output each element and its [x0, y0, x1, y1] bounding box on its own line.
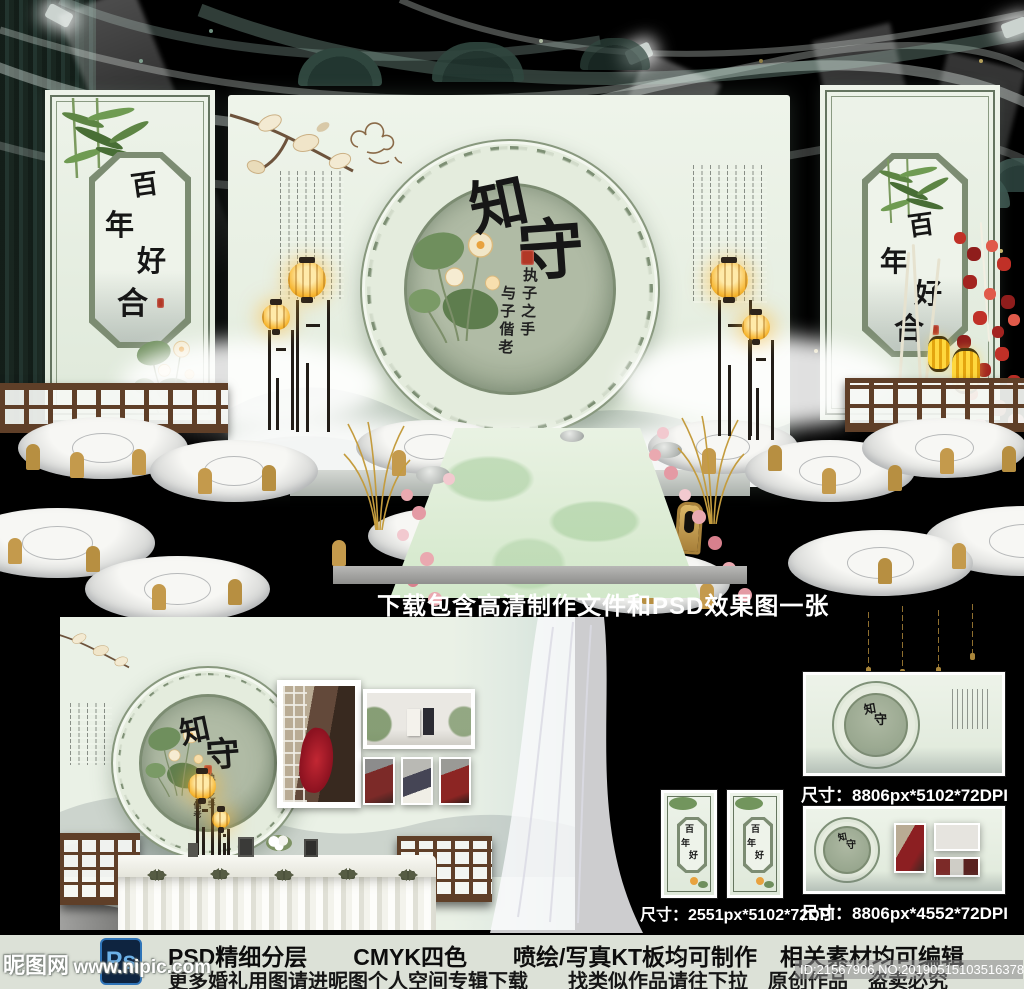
- banquet-table: [150, 440, 318, 502]
- wedding-photo-horizontal: [363, 689, 475, 749]
- wedding-photo-large: [277, 680, 361, 808]
- sheer-curtain-drape: [478, 617, 643, 933]
- thumbnail-side-panel: 百 年 好: [727, 790, 783, 898]
- mini-mountains: [806, 747, 1002, 773]
- table-frame-item: [238, 837, 254, 857]
- thumbnail-size-label: 尺寸：2551px*5102*72DPI: [640, 901, 812, 925]
- red-seal-stamp: [521, 250, 534, 265]
- lantern-stand: [268, 330, 294, 430]
- table-frame-item: [304, 839, 318, 857]
- table-bow: [277, 871, 291, 880]
- site-watermark-url: www.nipic.com: [73, 957, 211, 978]
- decor-rock: [560, 430, 584, 442]
- gold-lantern: [188, 773, 216, 799]
- gold-reeds-left: [342, 420, 412, 530]
- site-watermark: 昵图网 www.nipic.com: [3, 948, 211, 980]
- id-watermark: ID:21567906 NO:20190515103516378080: [795, 960, 1023, 979]
- magnolia-branch-illustration: [60, 623, 144, 695]
- panel-char-he: 合: [117, 288, 148, 319]
- panel-char-nian: 年: [880, 249, 908, 277]
- gold-tassel: [972, 604, 973, 654]
- groom-figure: [423, 708, 433, 735]
- mini-mountains: [806, 871, 1002, 891]
- signin-table: [118, 855, 436, 930]
- gold-tassel: [938, 610, 939, 668]
- banquet-table: [862, 418, 1024, 478]
- thumbnail-photo-backdrop: 知 守: [803, 806, 1005, 894]
- mini-flower: [690, 877, 698, 885]
- mini-bamboo: [735, 797, 763, 810]
- decor-rock: [416, 466, 450, 484]
- mini-bamboo: [669, 797, 697, 810]
- thumbnail-size-label: 尺寸：8806px*4552*72DPI: [801, 899, 1007, 924]
- gold-tassel: [902, 606, 903, 670]
- yellow-lantern: [928, 336, 950, 372]
- gold-lantern: [710, 262, 748, 298]
- lantern-stand: [296, 300, 330, 432]
- wedding-photo-small: [401, 757, 433, 805]
- panel-char-bai: 百: [906, 211, 935, 240]
- thumbnail-size-label: 尺寸：8806px*5102*72DPI: [801, 781, 1007, 806]
- stage-scene: 知 守 执子之手 与子偕老 百 年 好 合: [0, 0, 1024, 612]
- panel-char-nian: 年: [105, 212, 134, 241]
- mini-title-char2: 守: [874, 713, 887, 726]
- mini-photo: [934, 823, 980, 851]
- mini-leaf: [764, 881, 774, 888]
- floor-strip: [333, 566, 747, 584]
- auspicious-cloud-motif: [340, 117, 402, 169]
- thumbnail-main-backdrop: 知 守: [803, 672, 1005, 776]
- banquet-table: [85, 556, 270, 622]
- gold-lantern: [742, 314, 770, 340]
- gold-lantern: [212, 811, 230, 828]
- info-bar: Ps PSD精细分层 CMYK四色 喷绘/写真KT板均可制作 相关素材均可编辑 …: [0, 935, 1024, 989]
- red-dress-figure: [296, 726, 338, 795]
- pleated-table-skirt: [118, 877, 436, 930]
- mini-flower: [756, 877, 764, 885]
- site-watermark-name: 昵图网: [3, 953, 69, 978]
- mini-char: 百: [685, 825, 694, 834]
- table-flower-ball: [266, 835, 292, 851]
- mini-char: 好: [755, 851, 764, 860]
- red-seal-stamp: [157, 298, 164, 308]
- wedding-photo-small: [439, 757, 471, 805]
- panel-char-bai: 百: [129, 170, 159, 200]
- mini-char: 年: [681, 839, 690, 848]
- mini-char: 百: [751, 825, 760, 834]
- table-bow: [401, 871, 415, 880]
- wedding-photo-small: [363, 757, 395, 805]
- mini-leaf: [698, 881, 708, 888]
- table-bow: [213, 870, 227, 879]
- mini-poem-columns: [952, 689, 988, 729]
- pink-flower-clusters: [0, 0, 6, 6]
- table-decor-item: [188, 843, 198, 857]
- table-bow: [341, 870, 355, 879]
- gold-tassel: [868, 612, 869, 668]
- mini-title-char2: 守: [846, 841, 856, 851]
- mini-char: 好: [689, 851, 698, 860]
- table-bow: [150, 871, 164, 880]
- thumbnail-side-panel: 百 年 好: [661, 790, 717, 898]
- wedding-backdrop-poster: 知 守 执子之手 与子偕老 百 年 好 合: [0, 0, 1024, 989]
- mini-char: 年: [747, 839, 756, 848]
- lantern-stand: [748, 340, 774, 440]
- mini-photo: [894, 823, 926, 873]
- gold-lantern: [288, 262, 326, 298]
- poem-text-columns: [70, 703, 112, 765]
- gold-lantern: [262, 304, 290, 330]
- panel-char-hao: 好: [137, 248, 166, 277]
- lantern-stand: [196, 799, 214, 857]
- stage-caption: 下载包含高清制作文件和PSD效果图一张: [377, 586, 829, 621]
- bride-figure: [407, 709, 421, 736]
